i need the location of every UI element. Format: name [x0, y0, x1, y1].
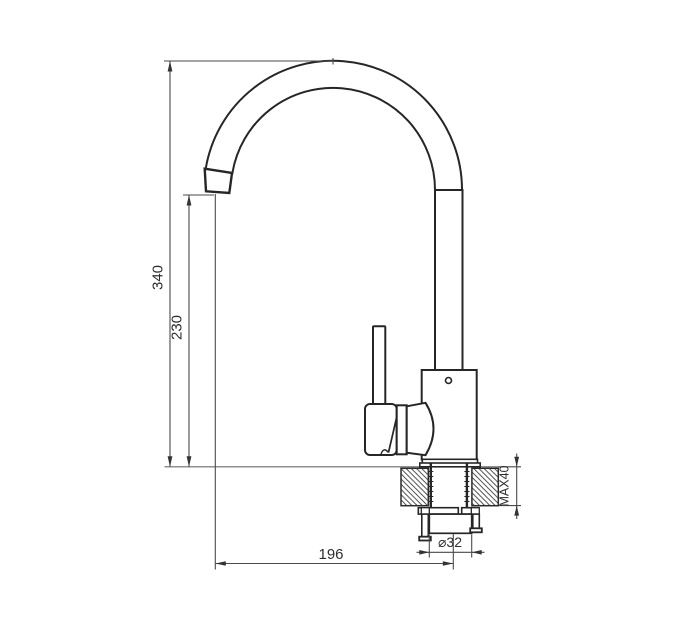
label-overall-height: 340	[150, 265, 167, 290]
arrow-230-bottom	[187, 456, 192, 467]
spout-arc-tube	[206, 61, 462, 190]
stud-washer-right	[470, 528, 482, 532]
faucet-outline	[205, 61, 481, 467]
label-hole-diameter: ⌀32	[438, 534, 462, 550]
mounting-stud-right	[473, 514, 480, 528]
arrow-max40-bottom	[514, 506, 519, 516]
handle-adapter-ring	[397, 405, 407, 454]
countertop-section-right	[472, 468, 498, 505]
label-spout-outlet-height: 230	[169, 315, 186, 340]
arrow-196-right	[443, 561, 454, 566]
mounting-stud-left	[422, 514, 429, 537]
base-flange-lower	[420, 463, 480, 467]
bracket-nut-right	[471, 508, 479, 514]
arrow-196-left	[215, 561, 226, 566]
supply-tailpiece	[429, 514, 471, 533]
bracket-nut-left	[421, 508, 429, 514]
handle-lever-rod	[373, 326, 385, 404]
arrow-max40-top	[514, 457, 519, 467]
arrow-dia32-left	[419, 550, 429, 555]
arrow-340-top	[168, 61, 173, 72]
arrow-dia32-right	[472, 550, 482, 555]
countertop-section	[401, 468, 498, 505]
countertop-section-left	[401, 468, 428, 505]
spout-tip-aerator	[205, 169, 232, 193]
arrow-230-top	[187, 195, 192, 206]
drawing-sheet: 340 230 196 ⌀32 MAX40	[0, 0, 680, 630]
handle-base	[365, 404, 397, 455]
body-screw-hole	[446, 378, 452, 384]
label-spout-reach: 196	[318, 546, 343, 563]
valve-housing	[407, 403, 434, 455]
riser-tube	[435, 190, 463, 370]
label-max-mounting-thickness: MAX40	[498, 465, 512, 506]
faucet-technical-drawing: 340 230 196 ⌀32 MAX40	[0, 0, 680, 630]
shank-thread-ticks	[428, 472, 469, 502]
arrow-340-bottom	[168, 456, 173, 467]
